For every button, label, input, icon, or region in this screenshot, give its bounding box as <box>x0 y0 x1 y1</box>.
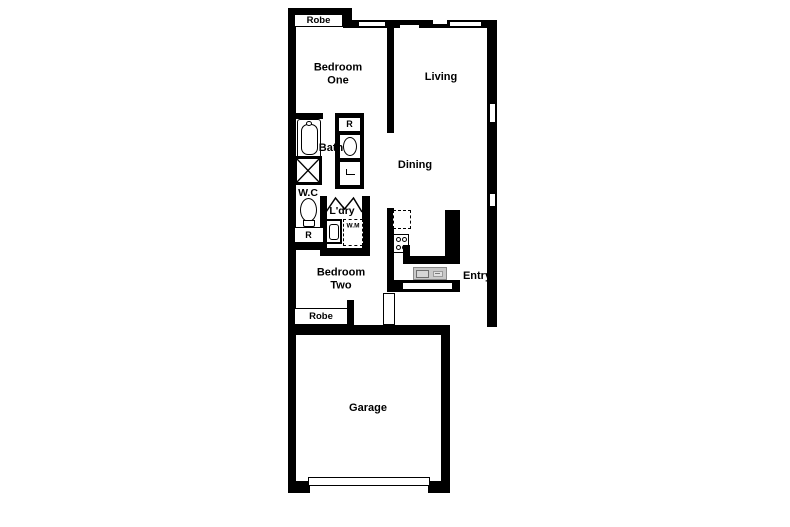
window-top-living-left <box>358 21 386 27</box>
wall-garage-right <box>441 325 450 493</box>
room-label-garage: Garage <box>349 402 387 415</box>
floor-plan: Robe Robe R R W.M <box>0 0 790 527</box>
wall-laundry-bottom <box>320 248 370 256</box>
laundry-trough-inner <box>329 224 339 240</box>
stove-burner-icon <box>396 237 401 242</box>
kitchen-bench-bottom <box>403 256 460 264</box>
washing-machine-label: W.M <box>347 223 360 230</box>
bathtub-tap-icon <box>306 121 312 126</box>
wall-garage-top <box>288 325 448 335</box>
shower <box>294 156 322 185</box>
robe-top-label: Robe <box>307 14 331 27</box>
window-top-living-right <box>449 21 482 27</box>
room-label-bedroom-two: Bedroom Two <box>317 267 365 292</box>
vanity-basin <box>343 137 357 156</box>
room-label-living: Living <box>425 71 457 84</box>
shower-x-icon <box>297 159 319 182</box>
sink-tap-icon <box>435 273 440 274</box>
toilet-pan <box>300 198 317 222</box>
sink-bowl <box>416 270 429 278</box>
fixture-icon <box>346 169 355 175</box>
room-label-bedroom-one: Bedroom One <box>314 62 362 87</box>
window-right-dining <box>489 193 496 207</box>
stove-burner-icon <box>396 245 401 250</box>
wall-mid-bedroom-living <box>387 28 394 133</box>
wall-garage-stub-left <box>288 481 310 493</box>
wall-robe2-side <box>347 300 354 325</box>
bath-cupboard-r-label: R <box>346 118 353 131</box>
kitchen-bottom-recess <box>403 283 452 289</box>
pantry-box <box>393 210 411 229</box>
window-right-living <box>489 103 496 123</box>
wall-garage-stub-right <box>428 481 450 493</box>
room-label-bath: Bath <box>319 142 343 155</box>
toilet-base <box>303 220 315 227</box>
wc-cupboard-label: R <box>305 229 312 242</box>
stove-burner-icon <box>402 237 407 242</box>
room-label-laundry: L'dry <box>329 205 354 218</box>
room-label-entry: Entry <box>463 270 491 283</box>
wall-notch-low <box>400 25 419 31</box>
wall-laundry-right <box>362 196 370 256</box>
robe-bottom-label: Robe <box>309 310 333 323</box>
wall-left-outer <box>288 8 296 493</box>
wall-notch-high <box>433 18 447 24</box>
bathtub-inner <box>301 124 318 155</box>
entry-internal-door <box>383 293 395 325</box>
room-label-wc: W.C <box>298 187 318 200</box>
room-label-dining: Dining <box>398 159 432 172</box>
garage-door-panel <box>308 477 430 486</box>
wall-top-step <box>343 8 352 28</box>
